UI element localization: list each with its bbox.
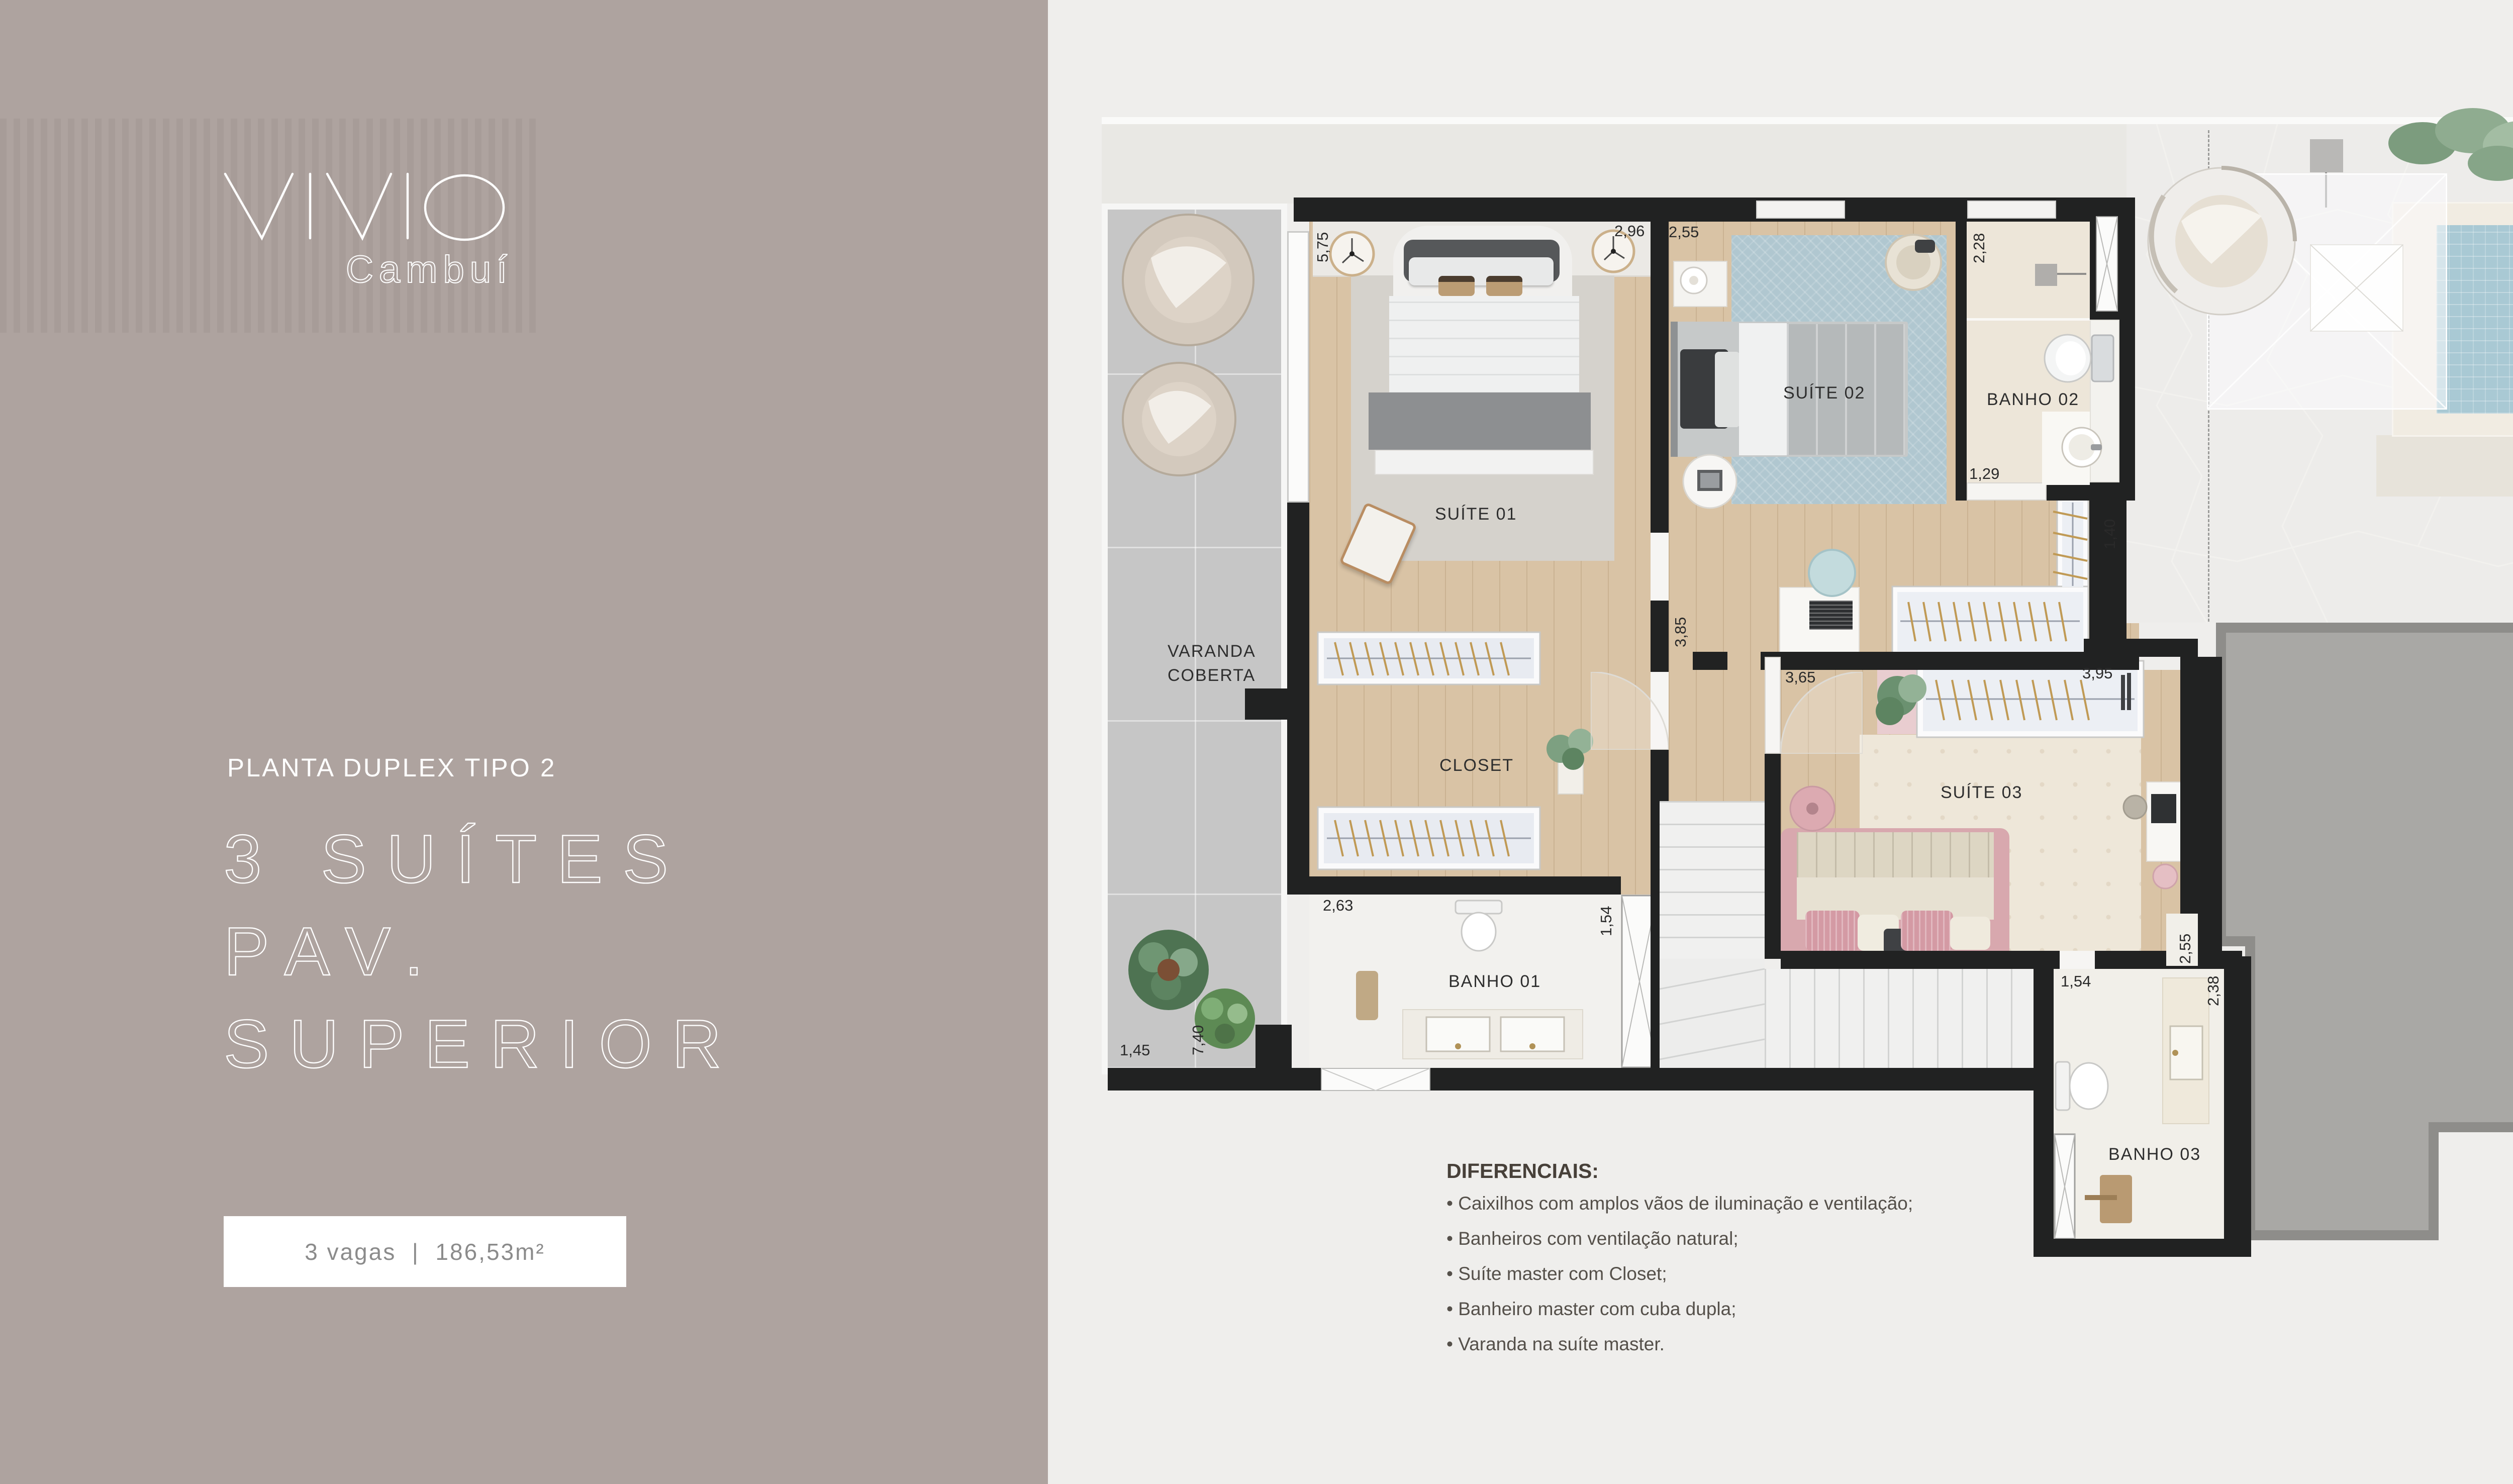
svg-text:Cambuí: Cambuí bbox=[346, 248, 513, 291]
